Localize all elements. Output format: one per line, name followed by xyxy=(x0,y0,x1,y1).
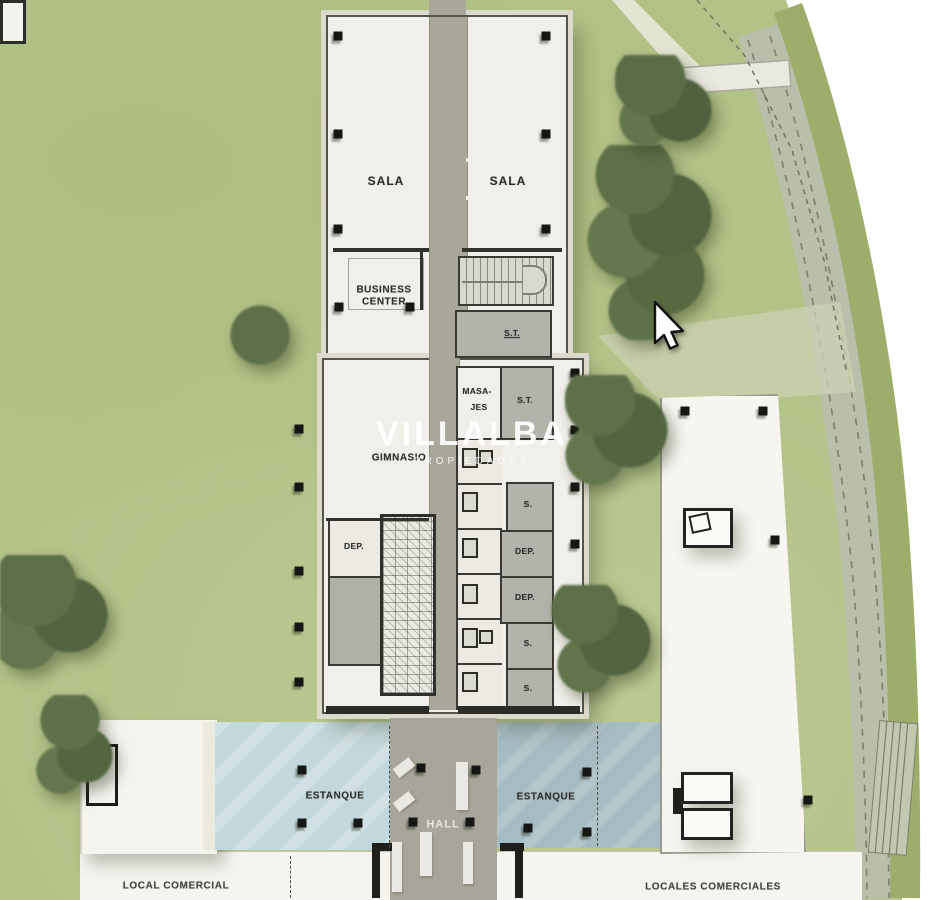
site-plan: SALA SALA BUSINESS CENTER S.T. MASA- JES… xyxy=(0,0,944,900)
mouse-cursor-icon xyxy=(0,0,944,900)
